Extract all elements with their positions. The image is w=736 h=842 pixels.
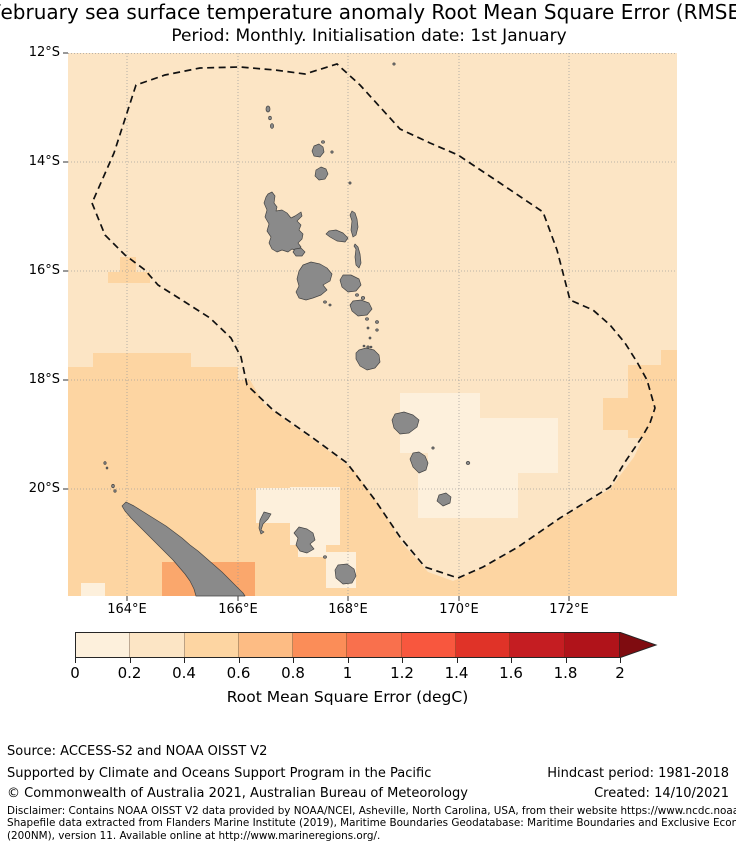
- colorbar-segment: [76, 633, 130, 657]
- colorbar-segment: [293, 633, 347, 657]
- colorbar-segment: [456, 633, 510, 657]
- colorbar-tick-value: 0.2: [118, 664, 142, 682]
- supported-by-text: Supported by Climate and Oceans Support …: [7, 766, 431, 781]
- colorbar-tickmark: [511, 658, 512, 663]
- source-text: Source: ACCESS-S2 and NOAA OISST V2: [7, 744, 267, 759]
- lat-tick-label: 18°S: [0, 371, 60, 389]
- colorbar-segment: [239, 633, 293, 657]
- colorbar-tick-value: 0: [70, 664, 80, 682]
- colorbar-tickmark: [130, 658, 131, 663]
- disclaimer-line: Shapefile data extracted from Flanders M…: [7, 817, 736, 829]
- disclaimer-line: (200NM), version 11. Available online at…: [7, 830, 736, 842]
- colorbar-tickmark: [348, 658, 349, 663]
- colorbar-segment: [185, 633, 239, 657]
- colorbar-tickmark: [566, 658, 567, 663]
- disclaimer-line: Disclaimer: Contains NOAA OISST V2 data …: [7, 805, 736, 817]
- colorbar-extend-arrow: [619, 632, 659, 658]
- colorbar-tickmark: [293, 658, 294, 663]
- lon-tick-label: 164°E: [97, 602, 157, 617]
- created-date-text: Created: 14/10/2021: [594, 786, 729, 801]
- copyright-text: © Commonwealth of Australia 2021, Austra…: [7, 786, 468, 801]
- lat-tick-label: 20°S: [0, 480, 60, 498]
- colorbar-tickmark: [457, 658, 458, 663]
- hindcast-period-text: Hindcast period: 1981-2018: [547, 766, 729, 781]
- colorbar-segment: [510, 633, 564, 657]
- colorbar-tick-value: 1.4: [445, 664, 469, 682]
- colorbar: [75, 632, 658, 692]
- colorbar-tickmark: [239, 658, 240, 663]
- colorbar-tick-value: 0.6: [227, 664, 251, 682]
- colorbar-tickmark: [402, 658, 403, 663]
- colorbar-tick-value: 1.8: [554, 664, 578, 682]
- colorbar-segments: [75, 632, 620, 658]
- colorbar-tickmark: [620, 658, 621, 663]
- lon-tick-label: 170°E: [429, 602, 489, 617]
- colorbar-segment: [347, 633, 401, 657]
- disclaimer-text: Disclaimer: Contains NOAA OISST V2 data …: [7, 805, 736, 842]
- map-plot-area: [68, 53, 677, 596]
- colorbar-tick-value: 1: [343, 664, 353, 682]
- lon-tick-label: 166°E: [208, 602, 268, 617]
- figure-title: February sea surface temperature anomaly…: [0, 1, 736, 24]
- colorbar-segment: [402, 633, 456, 657]
- colorbar-segment: [130, 633, 184, 657]
- colorbar-tick-value: 1.6: [499, 664, 523, 682]
- colorbar-tick-value: 1.2: [390, 664, 414, 682]
- colorbar-tick-value: 2: [615, 664, 625, 682]
- colorbar-tickmark: [184, 658, 185, 663]
- lat-tick-label: 12°S: [0, 44, 60, 62]
- lon-tick-label: 172°E: [539, 602, 599, 617]
- figure-subtitle: Period: Monthly. Initialisation date: 1s…: [171, 26, 566, 46]
- colorbar-segment: [565, 633, 619, 657]
- lat-tick-label: 14°S: [0, 153, 60, 171]
- lat-tick-label: 16°S: [0, 262, 60, 280]
- figure-root: { "title": { "line1": "February sea surf…: [0, 0, 736, 839]
- lon-tick-label: 168°E: [318, 602, 378, 617]
- colorbar-tick-value: 0.4: [172, 664, 196, 682]
- colorbar-tickmark: [75, 658, 76, 663]
- map-svg: [68, 53, 677, 596]
- colorbar-tick-value: 0.8: [281, 664, 305, 682]
- colorbar-axis-label: Root Mean Square Error (degC): [75, 688, 620, 706]
